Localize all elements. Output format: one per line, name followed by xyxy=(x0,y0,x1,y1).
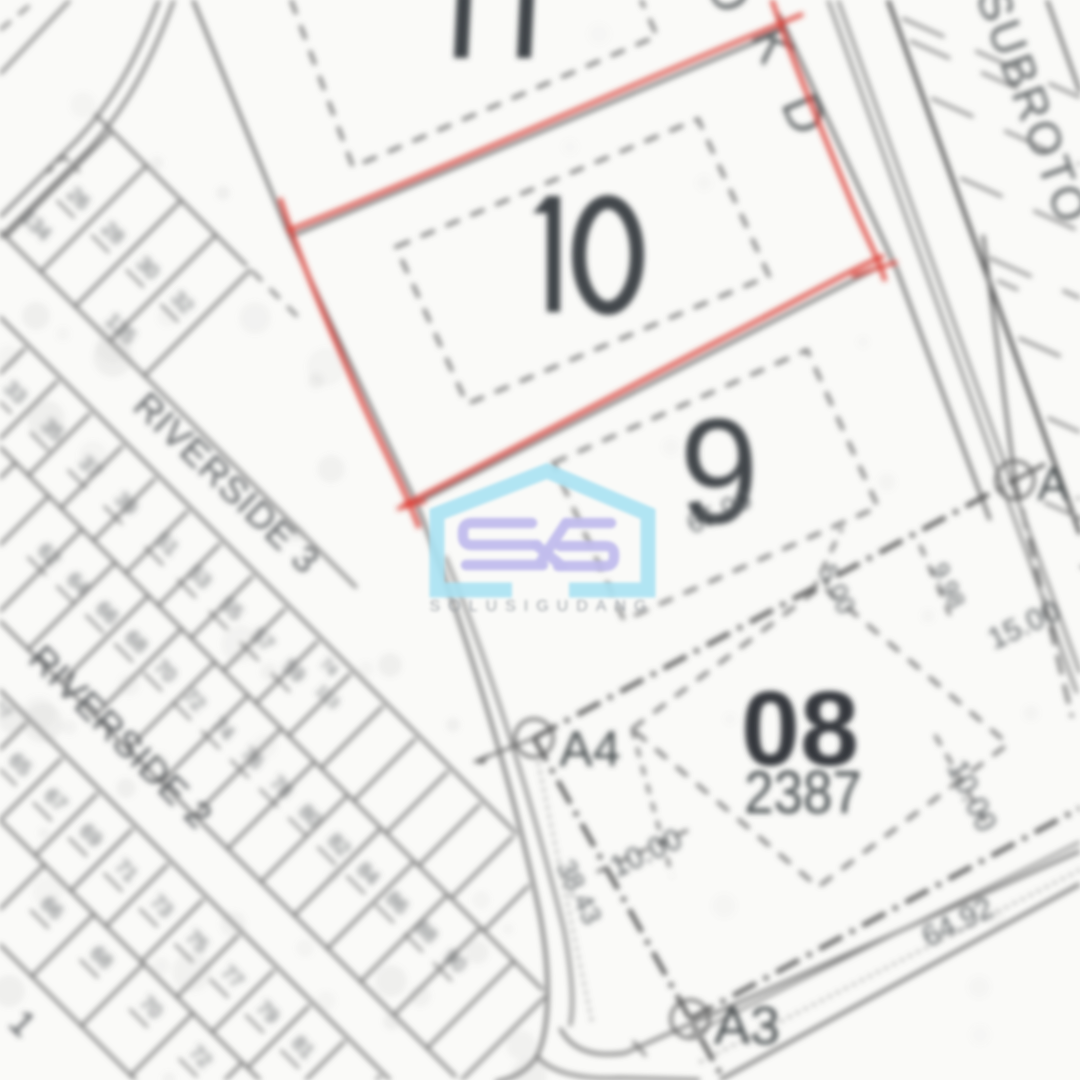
svg-text:A3: A3 xyxy=(714,996,780,1056)
svg-text:SOLUSIGUDANG: SOLUSIGUDANG xyxy=(430,598,655,615)
svg-text:A: A xyxy=(1037,457,1069,510)
svg-text:2387: 2387 xyxy=(744,759,861,826)
svg-text:A4: A4 xyxy=(559,721,620,777)
